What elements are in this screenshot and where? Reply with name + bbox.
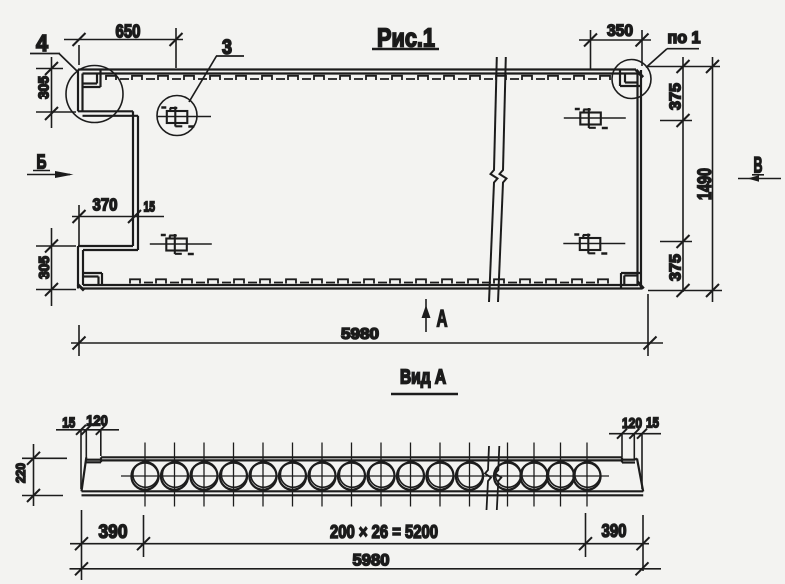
svg-text:15: 15	[144, 200, 156, 216]
svg-text:15: 15	[646, 414, 659, 431]
svg-text:305: 305	[37, 76, 53, 99]
svg-text:390: 390	[602, 521, 627, 541]
svg-text:А: А	[437, 306, 448, 333]
svg-text:В: В	[754, 153, 763, 178]
svg-text:Вид А: Вид А	[400, 367, 446, 389]
svg-text:650: 650	[116, 21, 141, 42]
svg-text:350: 350	[607, 21, 633, 40]
svg-text:390: 390	[99, 522, 128, 543]
svg-text:305: 305	[37, 256, 53, 279]
svg-text:220: 220	[13, 463, 28, 483]
svg-text:375: 375	[668, 254, 685, 281]
svg-text:370: 370	[93, 195, 118, 215]
svg-text:по 1: по 1	[668, 28, 701, 47]
svg-text:5980: 5980	[353, 551, 390, 570]
svg-text:200 × 26 = 5200: 200 × 26 = 5200	[330, 522, 438, 542]
svg-text:5980: 5980	[341, 326, 379, 343]
svg-text:4: 4	[36, 30, 48, 56]
svg-text:375: 375	[668, 83, 685, 110]
